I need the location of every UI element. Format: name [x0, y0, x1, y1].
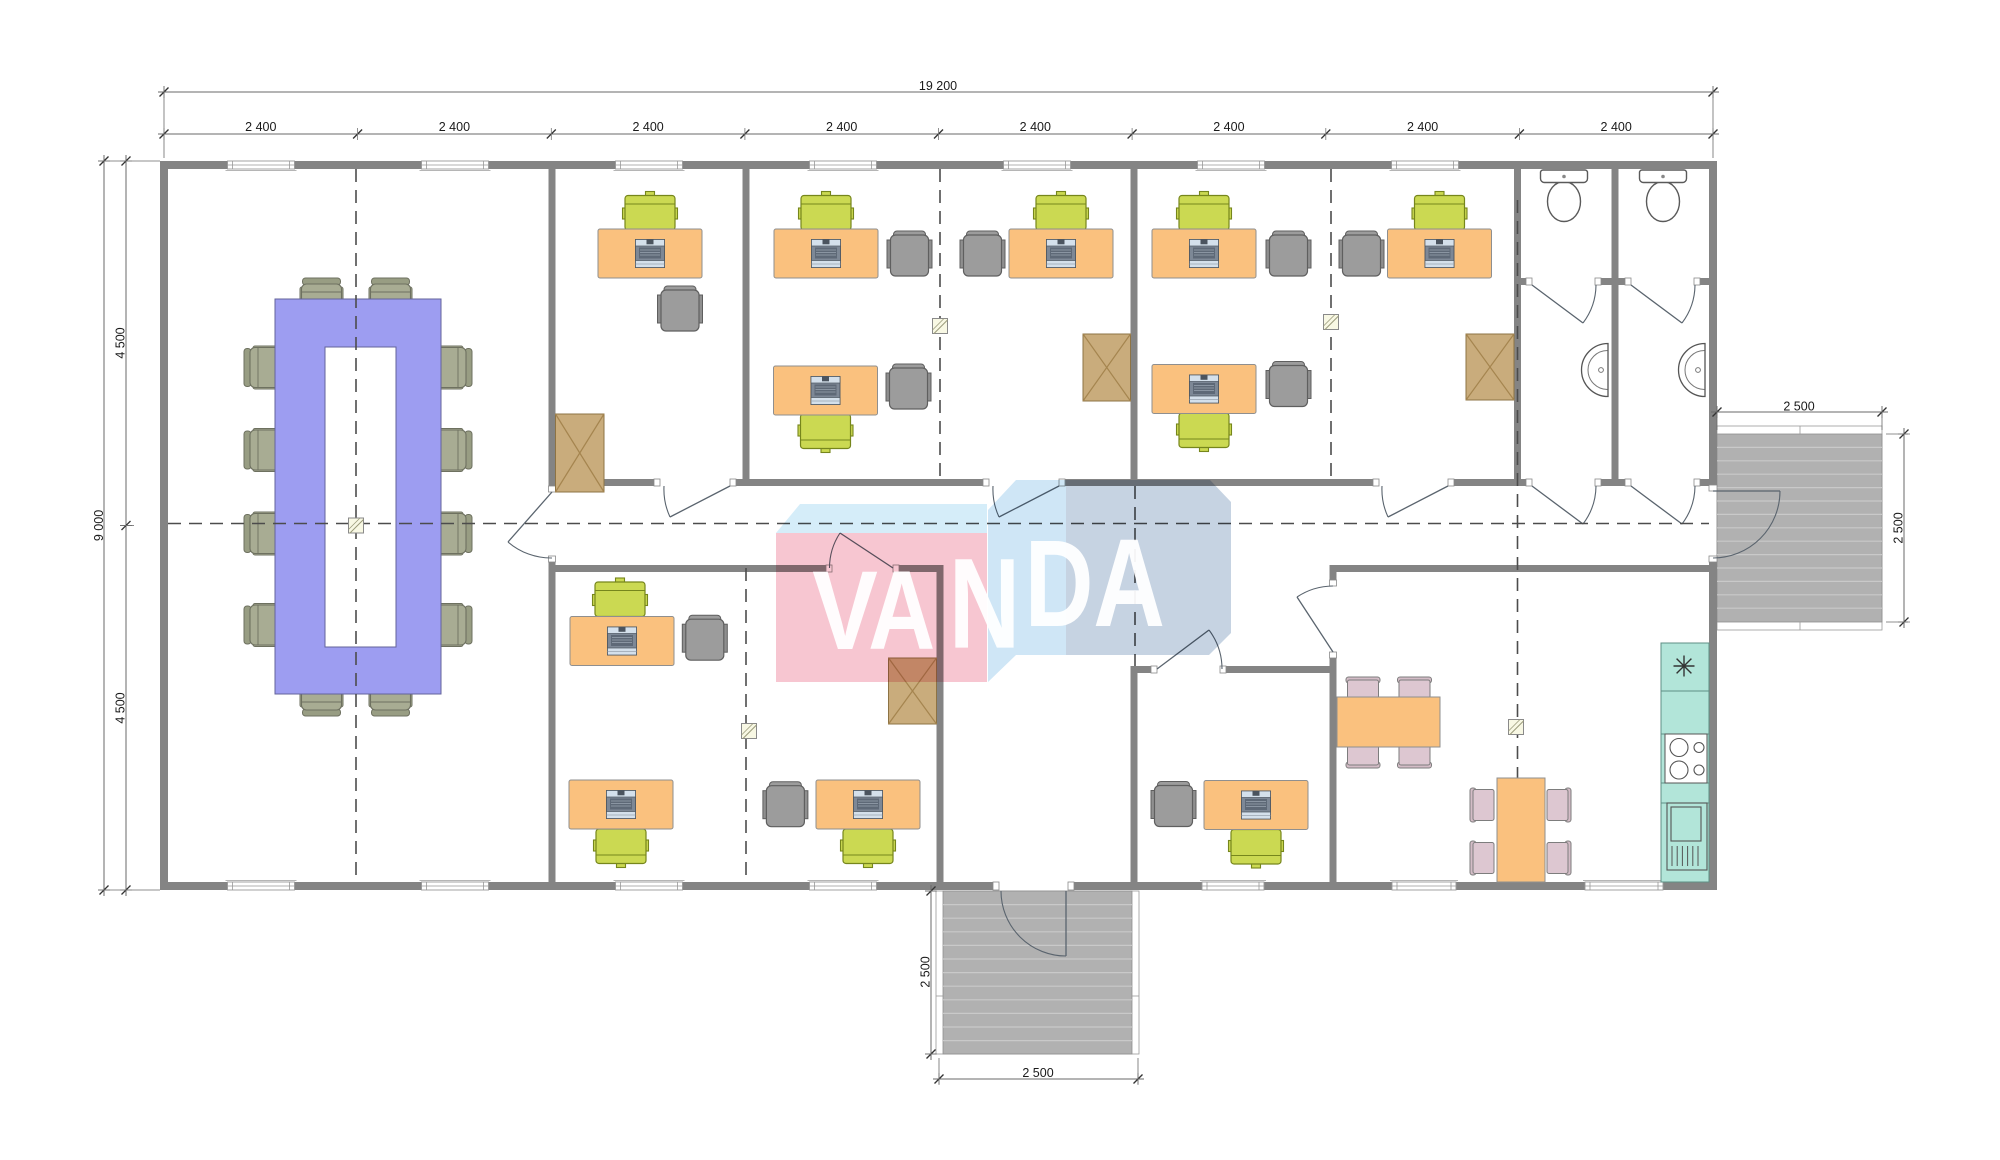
svg-text:2 400: 2 400 — [1601, 120, 1632, 134]
svg-text:A: A — [1093, 513, 1165, 652]
svg-text:2 400: 2 400 — [826, 120, 857, 134]
svg-text:D: D — [1025, 515, 1094, 653]
svg-text:4 500: 4 500 — [113, 327, 127, 358]
svg-text:2 400: 2 400 — [245, 120, 276, 134]
svg-text:9 000: 9 000 — [92, 510, 106, 541]
svg-text:2 500: 2 500 — [1892, 512, 1906, 543]
svg-text:2 400: 2 400 — [1020, 120, 1051, 134]
svg-text:4 500: 4 500 — [113, 692, 127, 723]
svg-text:2 500: 2 500 — [919, 956, 933, 987]
svg-text:2 400: 2 400 — [1407, 120, 1438, 134]
svg-text:A: A — [868, 547, 935, 672]
svg-text:19 200: 19 200 — [919, 79, 957, 93]
svg-text:2 400: 2 400 — [632, 120, 663, 134]
svg-text:2 500: 2 500 — [1783, 400, 1814, 414]
svg-text:2 400: 2 400 — [439, 120, 470, 134]
svg-text:2 400: 2 400 — [1213, 120, 1244, 134]
svg-text:2 500: 2 500 — [1022, 1066, 1053, 1080]
svg-text:N: N — [949, 532, 1021, 675]
